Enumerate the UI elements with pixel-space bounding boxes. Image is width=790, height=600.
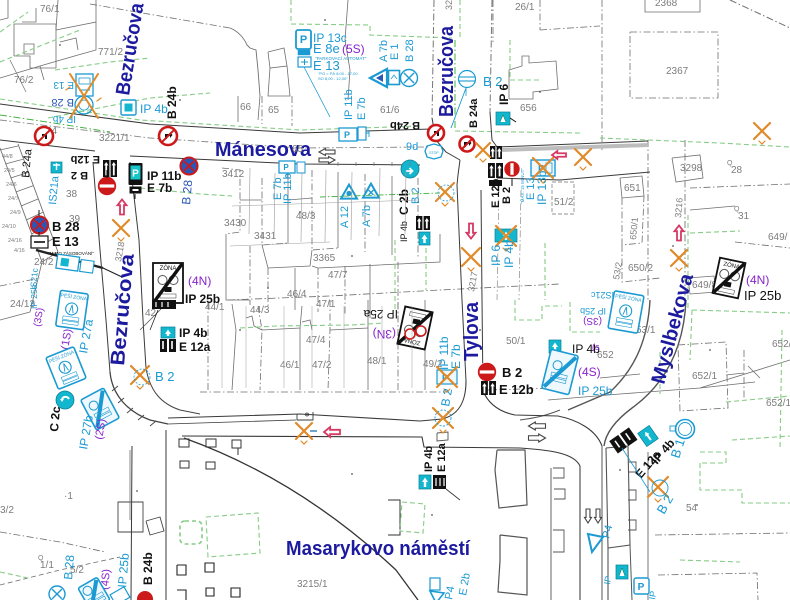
- svg-text:24/7: 24/7: [8, 196, 19, 202]
- svg-text:IP 4b: IP 4b: [140, 102, 168, 116]
- svg-text:76/2: 76/2: [14, 75, 34, 86]
- svg-text:E 12b: E 12b: [490, 178, 502, 208]
- svg-text:Bezručova: Bezručova: [436, 25, 458, 117]
- svg-text:"MIMO ZÁSOBOVÁNÍ": "MIMO ZÁSOBOVÁNÍ": [48, 250, 94, 256]
- svg-text:61/6: 61/6: [380, 105, 400, 116]
- svg-text:IP 4b: IP 4b: [502, 240, 516, 268]
- svg-text:IP 4b: IP 4b: [179, 326, 207, 340]
- svg-text:B 28: B 28: [179, 179, 195, 205]
- svg-text:Tylova: Tylova: [461, 301, 483, 361]
- svg-text:IP: IP: [647, 590, 658, 600]
- svg-text:IP 25b: IP 25b: [185, 292, 220, 306]
- svg-text:IS21c: IS21c: [590, 290, 614, 300]
- svg-text:3/2: 3/2: [0, 505, 14, 516]
- svg-text:P: P: [300, 34, 307, 46]
- svg-text:P: P: [344, 130, 350, 140]
- svg-text:26/1: 26/1: [515, 2, 535, 13]
- svg-text:Q: Q: [734, 206, 740, 213]
- svg-text:54: 54: [686, 503, 698, 514]
- svg-text:IP: IP: [602, 575, 613, 585]
- svg-text:652/1: 652/1: [692, 371, 717, 382]
- svg-text:IP 25a: IP 25a: [363, 307, 398, 321]
- svg-text:IP 25b: IP 25b: [580, 306, 606, 316]
- svg-text:(5S): (5S): [342, 42, 365, 56]
- svg-text:A 7b: A 7b: [361, 205, 373, 227]
- svg-text:B 28: B 28: [52, 219, 79, 234]
- svg-text:9d: 9d: [406, 141, 418, 153]
- svg-text:47/4: 47/4: [306, 335, 326, 346]
- svg-text:47/2: 47/2: [312, 360, 332, 371]
- svg-text:24/16: 24/16: [8, 238, 22, 244]
- svg-text:A 12: A 12: [339, 206, 351, 228]
- svg-text:B 2: B 2: [155, 369, 175, 384]
- svg-text:E 12a: E 12a: [436, 442, 448, 472]
- svg-text:B 2: B 2: [501, 187, 513, 204]
- svg-text:(s: (s: [592, 342, 600, 352]
- svg-text:B 2: B 2: [410, 187, 422, 204]
- svg-text:ZÓNA: ZÓNA: [160, 265, 177, 272]
- svg-text:IP 4b: IP 4b: [399, 221, 409, 242]
- svg-text:E 13: E 13: [53, 79, 74, 90]
- svg-text:48/1: 48/1: [367, 356, 387, 367]
- svg-text:651: 651: [624, 183, 641, 194]
- svg-text:E 12b: E 12b: [70, 153, 100, 165]
- svg-text:P: P: [638, 582, 645, 593]
- svg-text:IP 25a: IP 25a: [29, 284, 39, 309]
- svg-text:Q: Q: [38, 555, 44, 562]
- svg-text:44/3: 44/3: [250, 305, 270, 316]
- svg-text:650/2: 650/2: [628, 263, 653, 274]
- svg-text:B 28: B 28: [51, 96, 74, 108]
- svg-text:Q: Q: [727, 160, 733, 167]
- svg-text:44/8: 44/8: [2, 154, 13, 160]
- svg-text:E 12b: E 12b: [499, 382, 534, 397]
- svg-text:·1: ·1: [64, 491, 73, 502]
- svg-text:24/2: 24/2: [34, 257, 54, 268]
- svg-text:E 7b: E 7b: [356, 97, 368, 120]
- svg-text:3412: 3412: [222, 169, 245, 180]
- svg-text:47/1: 47/1: [316, 299, 336, 310]
- svg-text:24/9: 24/9: [10, 210, 21, 216]
- svg-text:65: 65: [292, 144, 304, 155]
- svg-text:B 2: B 2: [502, 365, 522, 380]
- svg-text:E 7b: E 7b: [449, 344, 463, 369]
- svg-text:E 1: E 1: [389, 43, 401, 60]
- svg-text:B 2: B 2: [71, 169, 88, 181]
- svg-text:P: P: [283, 163, 289, 172]
- svg-text:649/: 649/: [768, 232, 788, 243]
- svg-text:771/2: 771/2: [98, 47, 123, 58]
- svg-text:(4S): (4S): [578, 365, 601, 379]
- svg-text:47/7: 47/7: [328, 270, 348, 281]
- svg-text:76/1: 76/1: [40, 4, 60, 15]
- svg-text:24/10: 24/10: [2, 224, 16, 230]
- svg-text:B 24a: B 24a: [468, 98, 480, 128]
- svg-text:Masarykovo náměstí: Masarykovo náměstí: [286, 538, 471, 560]
- svg-text:3365: 3365: [313, 253, 336, 264]
- svg-text:(3N): (3N): [373, 327, 396, 341]
- svg-text:50/1: 50/1: [506, 336, 526, 347]
- svg-text:4/16: 4/16: [14, 248, 25, 254]
- svg-text:B 24b: B 24b: [141, 552, 155, 585]
- svg-text:46/4: 46/4: [287, 289, 307, 300]
- svg-text:B 28: B 28: [61, 554, 77, 580]
- svg-text:E 7b: E 7b: [272, 177, 284, 200]
- svg-text:65: 65: [268, 105, 280, 116]
- svg-text:C 2b: C 2b: [397, 189, 411, 215]
- svg-text:656: 656: [520, 103, 537, 114]
- svg-text:24/5: 24/5: [4, 168, 15, 174]
- svg-text:24/6: 24/6: [6, 182, 17, 188]
- svg-text:650/1: 650/1: [628, 217, 640, 240]
- svg-text:SO 8,00 - 12,00": SO 8,00 - 12,00": [318, 76, 348, 81]
- svg-text:E 8e: E 8e: [313, 41, 340, 56]
- svg-text:E 13: E 13: [52, 234, 79, 249]
- svg-text:3220: 3220: [444, 0, 454, 10]
- svg-text:2368: 2368: [655, 0, 678, 9]
- svg-text:48/3: 48/3: [296, 211, 316, 222]
- svg-text:31: 31: [738, 211, 750, 222]
- svg-text:66: 66: [240, 102, 252, 113]
- svg-text:E 13: E 13: [525, 177, 537, 200]
- svg-text:B 28: B 28: [404, 39, 416, 62]
- svg-text:652/1: 652/1: [766, 398, 790, 409]
- svg-text:3298: 3298: [680, 163, 703, 174]
- svg-text:P: P: [132, 169, 139, 180]
- svg-text:IP 4b: IP 4b: [423, 446, 435, 472]
- svg-text:3216: 3216: [673, 197, 685, 218]
- svg-text:IP 4b: IP 4b: [52, 113, 76, 124]
- svg-text:28: 28: [731, 165, 743, 176]
- svg-text:46/1: 46/1: [280, 360, 300, 371]
- svg-text:STOP: STOP: [429, 151, 439, 155]
- svg-text:IP 6: IP 6: [489, 245, 503, 266]
- svg-text:IP 25b: IP 25b: [744, 288, 781, 303]
- svg-text:IP 25b: IP 25b: [578, 384, 613, 398]
- svg-text:(4N): (4N): [746, 273, 769, 287]
- svg-text:B 24b: B 24b: [390, 119, 420, 131]
- svg-text:3430: 3430: [224, 218, 247, 229]
- svg-text:38: 38: [66, 189, 78, 200]
- svg-text:IP 13b: IP 13b: [535, 170, 549, 205]
- svg-text:B 24b: B 24b: [165, 86, 179, 119]
- svg-text:(4N): (4N): [188, 274, 211, 288]
- svg-text:51/2: 51/2: [554, 197, 574, 208]
- svg-text:3215/1: 3215/1: [297, 579, 328, 590]
- svg-text:3221/1: 3221/1: [99, 133, 130, 144]
- svg-text:3431: 3431: [254, 231, 277, 242]
- svg-text:2367: 2367: [666, 66, 689, 77]
- svg-text:652/: 652/: [772, 339, 790, 350]
- svg-text:IP 11b: IP 11b: [343, 89, 355, 120]
- svg-text:IP 6: IP 6: [497, 84, 511, 105]
- svg-text:C 2c: C 2c: [47, 405, 63, 432]
- svg-text:E 12a: E 12a: [179, 340, 211, 354]
- svg-text:E 7b: E 7b: [147, 181, 172, 195]
